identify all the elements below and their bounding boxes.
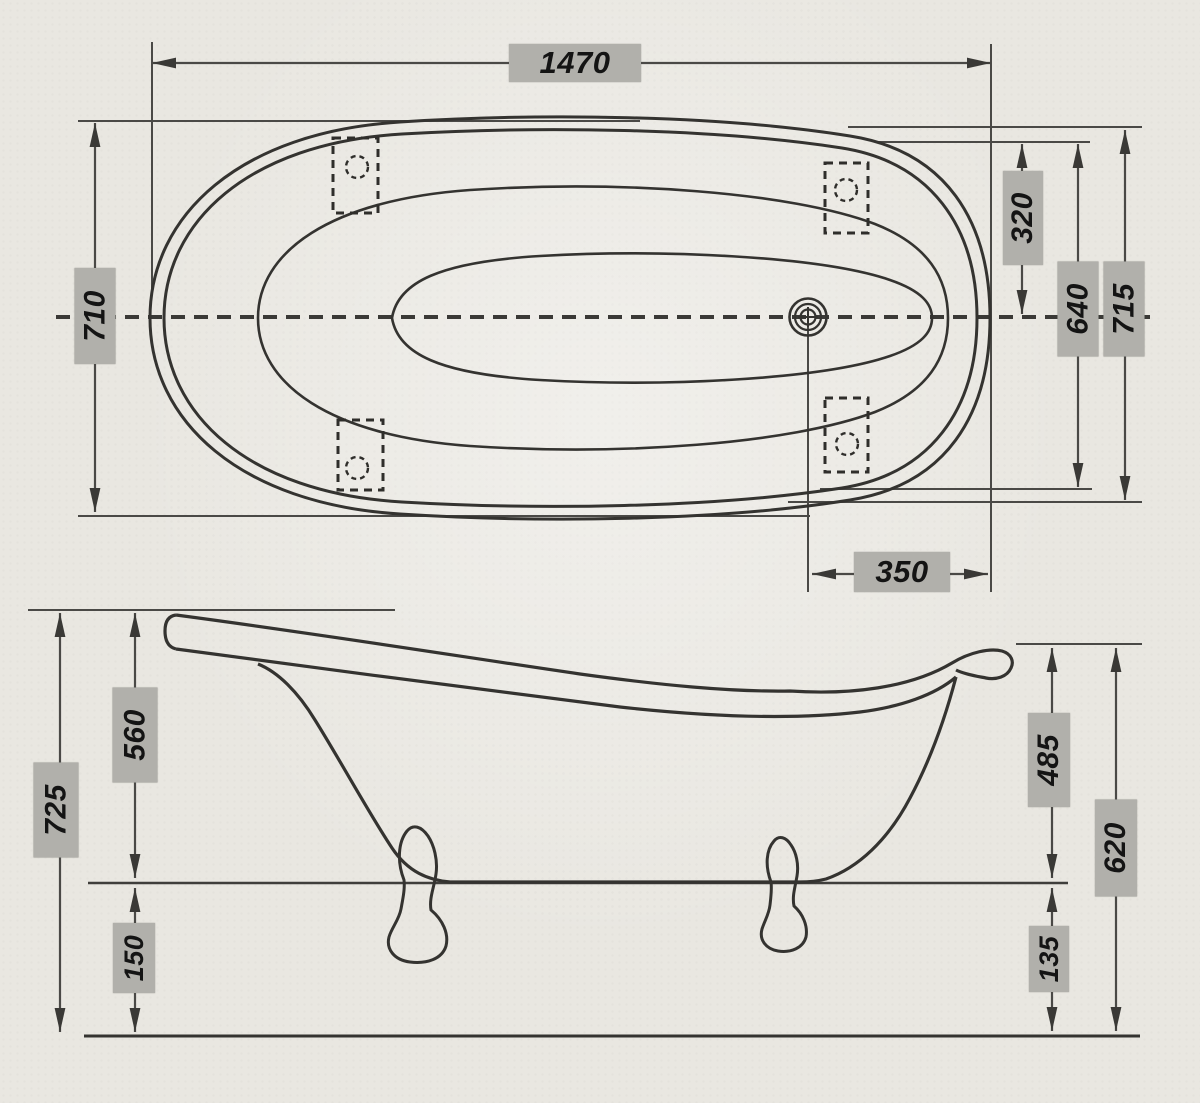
dim-width-right-label: 715	[1104, 262, 1145, 357]
rim-under-edge	[176, 649, 956, 716]
foot-mounting-pads	[333, 138, 868, 490]
side-view	[28, 610, 1142, 1036]
foot-bolt-top-right	[835, 179, 857, 201]
claw-foot-rear	[761, 838, 806, 952]
dim-body-height-right-label: 485	[1028, 713, 1070, 807]
foot-bolt-bottom-left	[346, 457, 368, 479]
foot-pad-bottom-right	[825, 398, 868, 472]
dim-length-label: 1470	[509, 44, 641, 82]
tub-body-outline	[258, 664, 956, 882]
dim-width-left-label: 710	[75, 268, 116, 364]
foot-bolt-bottom-right	[836, 433, 858, 455]
claw-foot-front	[388, 827, 446, 963]
bathtub-technical-drawing	[0, 0, 1200, 1103]
foot-pad-top-left	[333, 138, 378, 213]
foot-bolt-top-left	[346, 156, 368, 178]
dim-clearance-left-label: 150	[113, 923, 155, 993]
dim-overall-height-left-label: 725	[34, 763, 79, 858]
dim-drain-offset-label: 350	[854, 552, 950, 592]
top-view	[56, 42, 1150, 592]
dim-body-height-left-label: 560	[113, 688, 158, 783]
dim-clearance-right-label: 135	[1029, 926, 1069, 992]
technical-drawing-sheet: 1470 710 320 640 715 350 725 560 150 485…	[0, 0, 1200, 1103]
tub-side-profile	[165, 615, 1012, 962]
foot-pad-top-right	[825, 163, 868, 233]
dim-inner-span-label: 640	[1058, 262, 1099, 357]
rim-top-edge	[176, 615, 1012, 692]
dim-center-offset-label: 320	[1003, 171, 1043, 265]
dim-overall-height-right-label: 620	[1095, 800, 1137, 897]
drain-icon	[790, 299, 827, 336]
rim-left-cap	[165, 615, 176, 649]
